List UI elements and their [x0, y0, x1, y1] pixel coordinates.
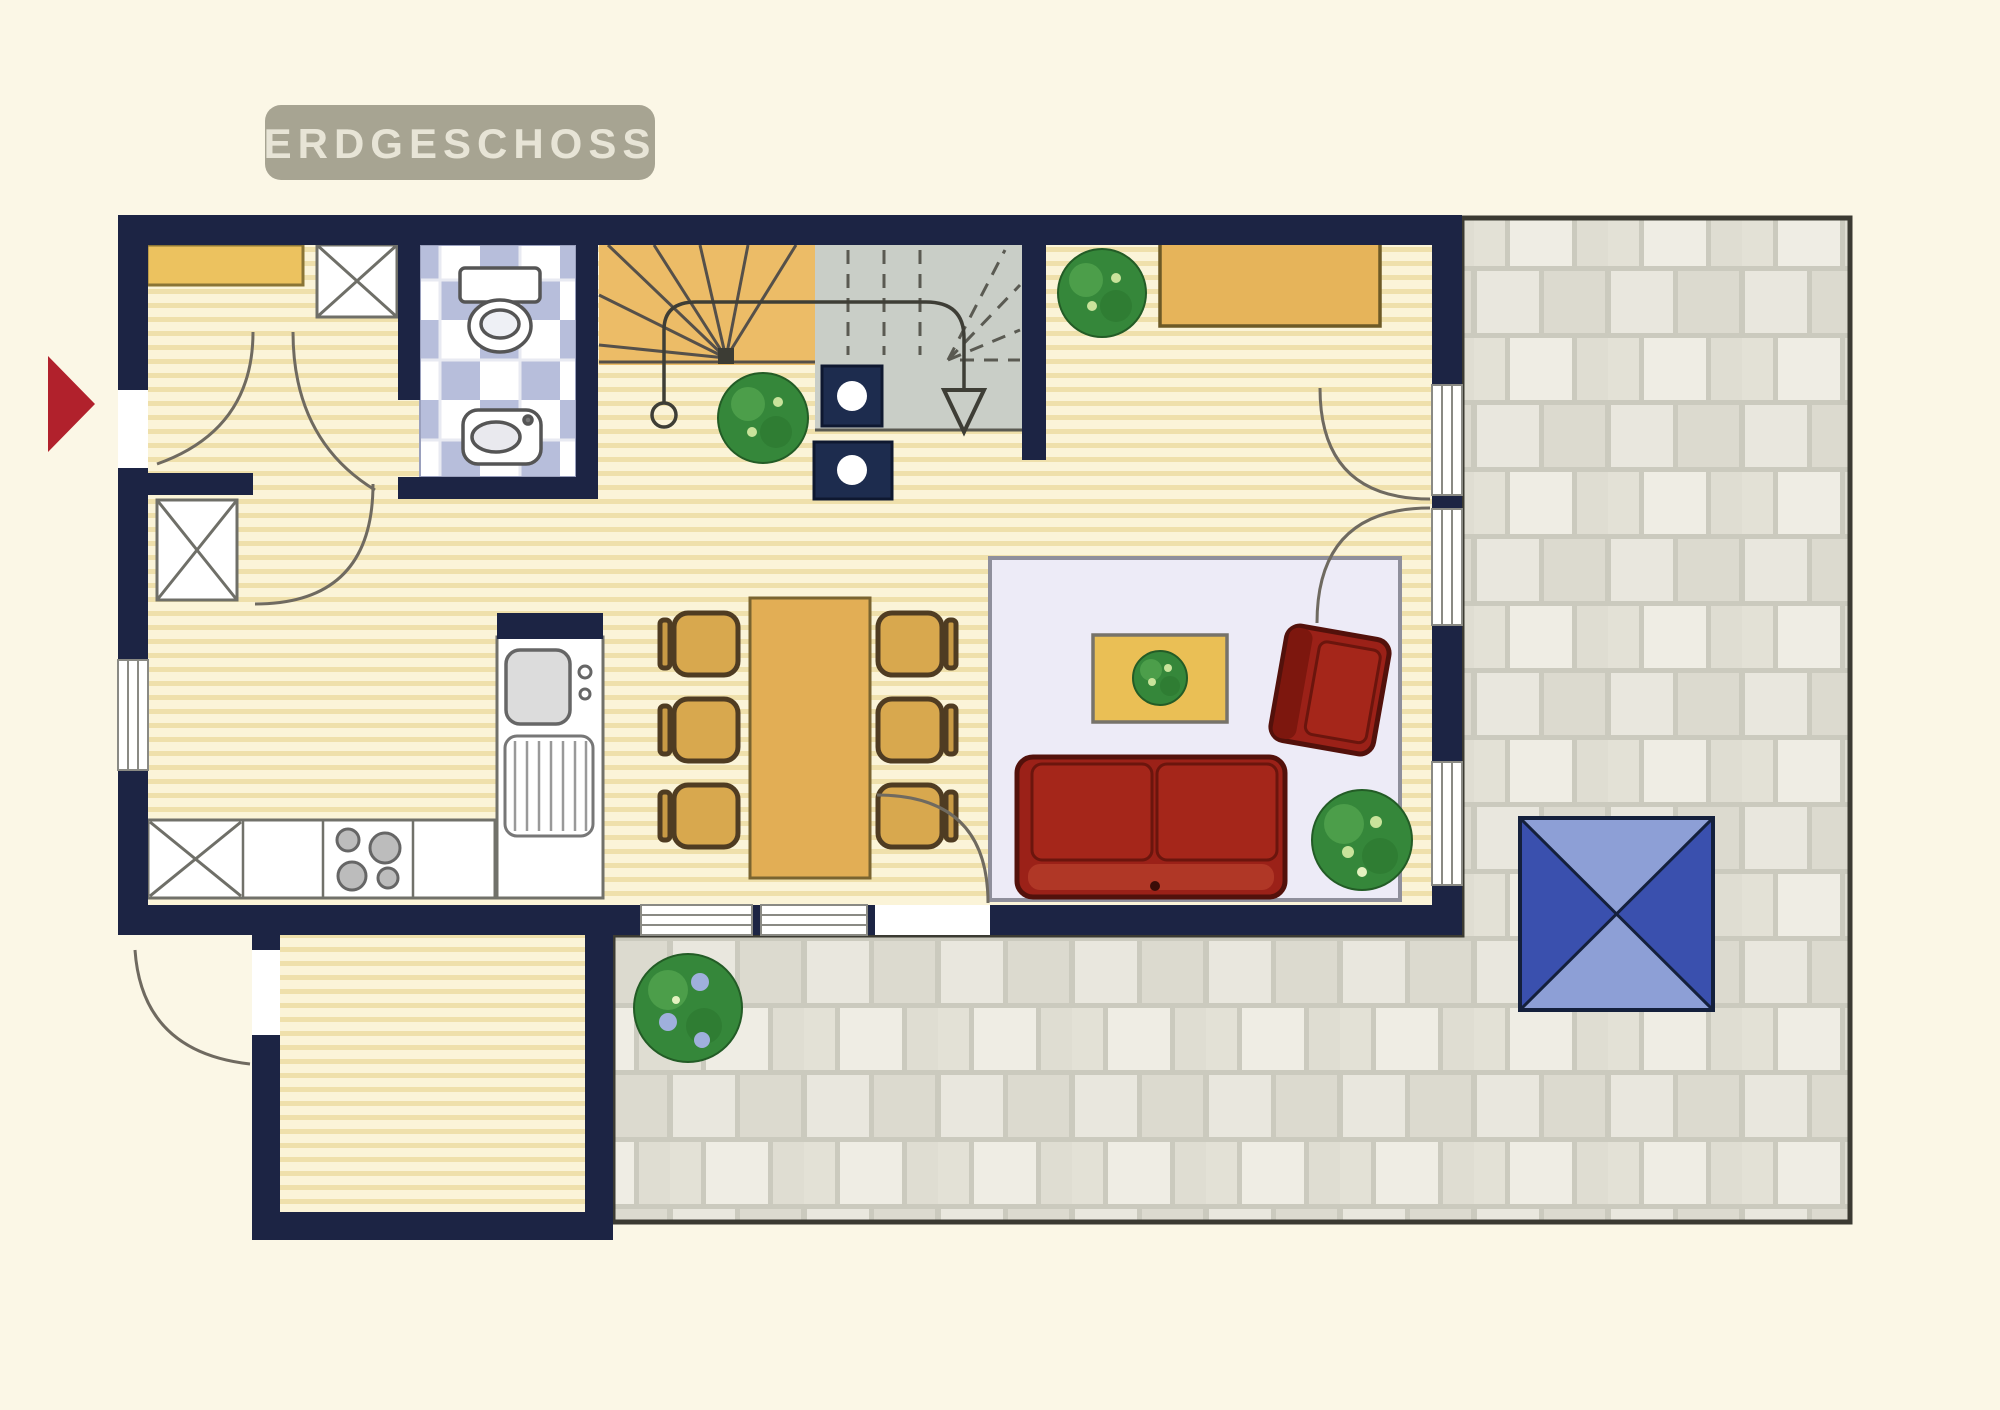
coffee-table-plant [1133, 651, 1187, 705]
dining-chair [878, 613, 956, 675]
annex-floor [280, 935, 585, 1212]
dining-chair [660, 613, 738, 675]
sink-basin [506, 650, 570, 724]
right-window [1432, 762, 1462, 885]
stair-newel-post [718, 348, 734, 364]
entrance-opening [118, 390, 148, 468]
annex-door-opening [252, 950, 280, 1035]
dining-chair [878, 699, 956, 761]
sideboard [1160, 242, 1380, 326]
right-terrace-door-middle [1432, 509, 1462, 625]
left-window [118, 660, 148, 770]
dining-chair [660, 699, 738, 761]
sofa-two-seat [1017, 757, 1285, 897]
annex-door-arc [135, 950, 250, 1064]
bottom-window-left [641, 905, 752, 935]
wash-basin [463, 410, 541, 464]
dining-table [750, 598, 870, 878]
floor-plan-drawing: ERDGESCHOSS [0, 0, 2000, 1410]
coffee-table [1093, 635, 1227, 722]
dining-chair [660, 785, 738, 847]
floor-plan-page: ERDGESCHOSS [0, 0, 2000, 1410]
plant-top-right [1058, 249, 1146, 337]
structural-post [814, 442, 892, 499]
kitchen-sink-unit [497, 613, 603, 898]
wardrobe-shelf [147, 245, 303, 285]
bottom-terrace-door-opening [875, 905, 990, 935]
entrance-marker-arrow-icon [48, 356, 95, 452]
title-banner: ERDGESCHOSS [264, 105, 657, 180]
floor-title: ERDGESCHOSS [264, 120, 657, 167]
bottom-window-right [761, 905, 867, 935]
sink-unit-wall-cap [497, 613, 603, 639]
plant-under-stairs [718, 373, 808, 463]
hall-cabinet-xbox [317, 245, 397, 317]
right-terrace-door-top [1432, 385, 1462, 495]
kitchen-counter [148, 820, 495, 898]
structural-post [822, 366, 882, 426]
kitchen-tall-cabinet-xbox [157, 500, 237, 600]
terrace-bush [634, 954, 742, 1062]
parasol-table [1520, 818, 1713, 1010]
living-plant [1312, 790, 1412, 890]
armchair [1269, 624, 1392, 756]
